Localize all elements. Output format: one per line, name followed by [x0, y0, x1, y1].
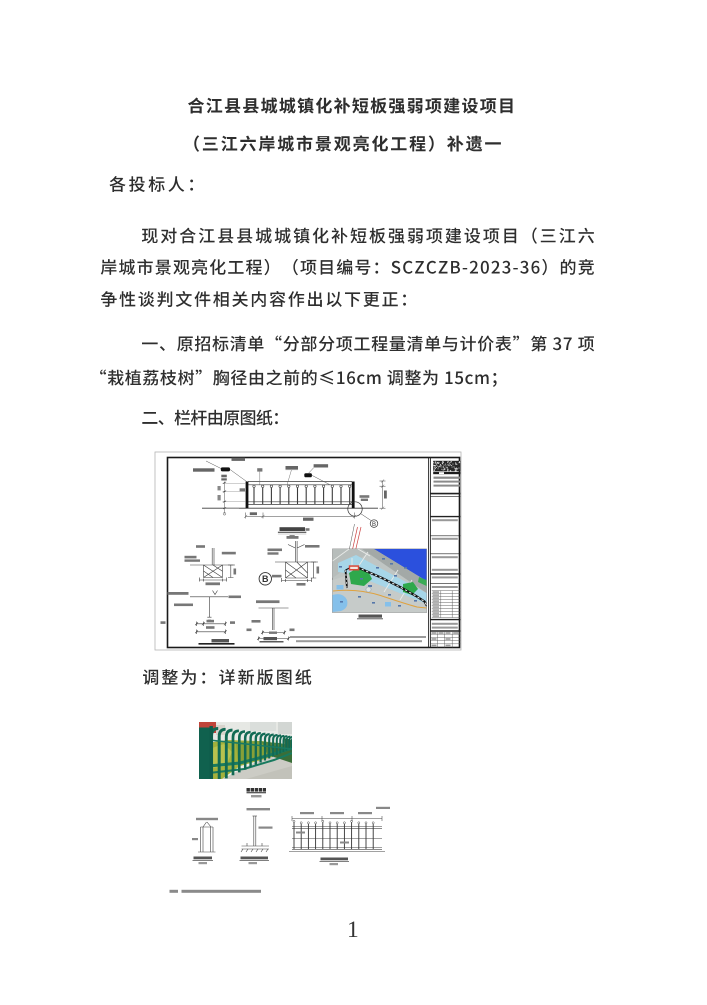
svg-text:1: 1 — [347, 917, 359, 943]
svg-text:B: B — [372, 522, 376, 528]
svg-text:B: B — [262, 574, 269, 584]
